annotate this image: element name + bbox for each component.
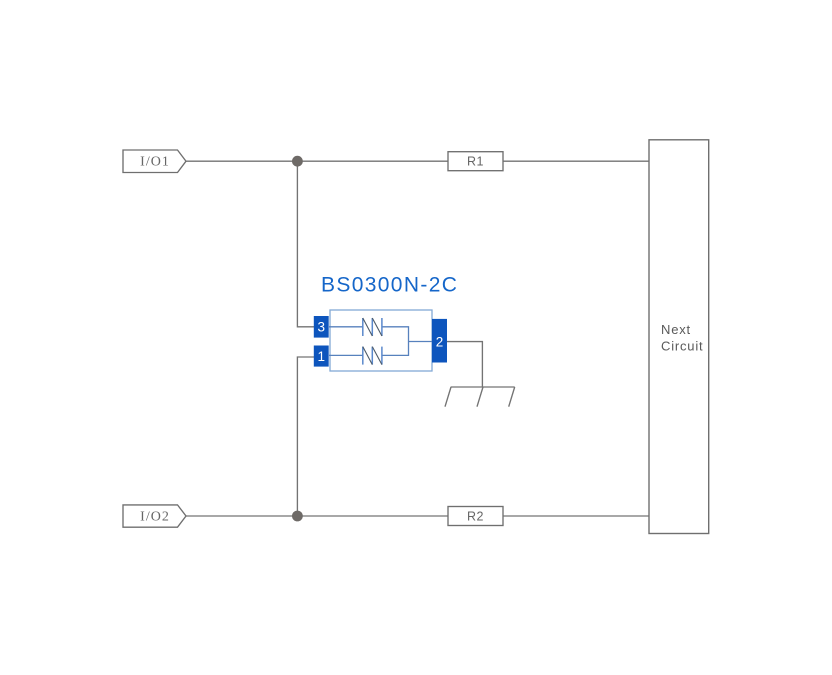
svg-text:I/O1: I/O1 [140, 155, 170, 170]
svg-text:I/O2: I/O2 [140, 509, 170, 524]
svg-text:3: 3 [318, 320, 326, 335]
svg-text:BS0300N-2C: BS0300N-2C [321, 273, 458, 296]
svg-text:R2: R2 [467, 510, 484, 524]
svg-text:1: 1 [318, 349, 326, 364]
svg-text:Next: Next [661, 322, 691, 337]
svg-text:2: 2 [436, 334, 444, 349]
svg-text:R1: R1 [467, 155, 484, 169]
svg-text:Circuit: Circuit [661, 339, 703, 354]
